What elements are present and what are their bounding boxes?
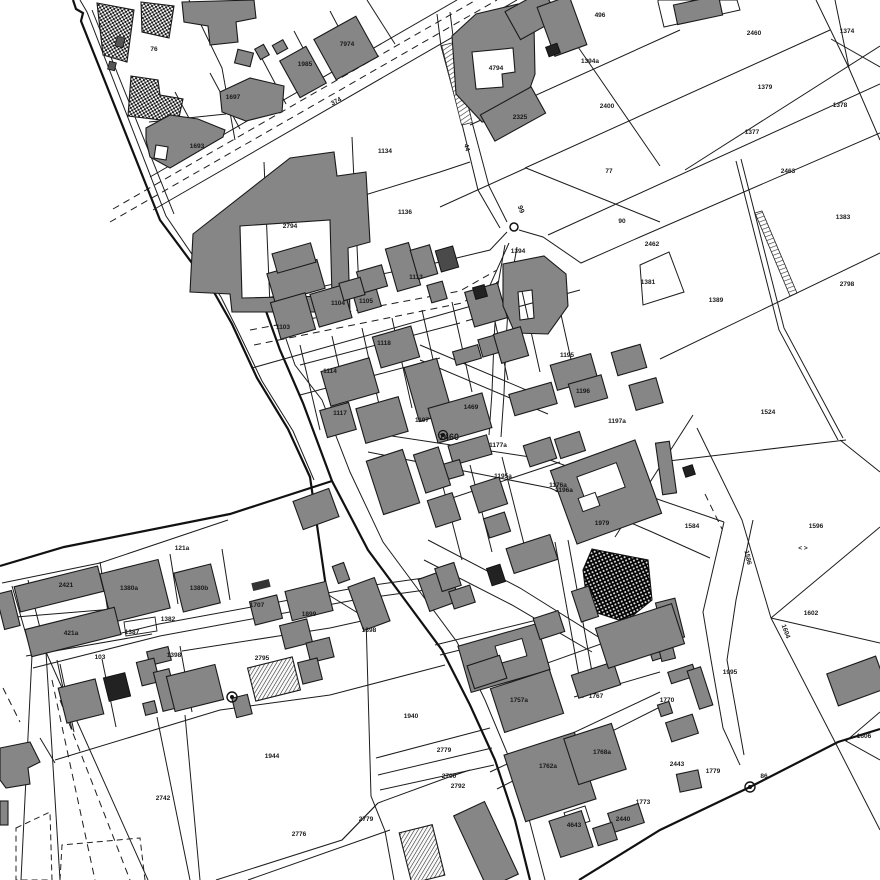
svg-text:2742: 2742	[156, 795, 171, 802]
svg-text:90: 90	[618, 218, 626, 225]
svg-text:1693: 1693	[190, 143, 205, 150]
svg-text:1377: 1377	[745, 129, 760, 136]
svg-text:86: 86	[760, 773, 768, 780]
svg-text:1374: 1374	[840, 28, 855, 35]
svg-text:1176a: 1176a	[549, 482, 567, 489]
svg-text:103: 103	[95, 654, 106, 661]
svg-text:1103: 1103	[276, 324, 290, 331]
svg-text:2795: 2795	[255, 655, 270, 662]
svg-text:1104: 1104	[331, 300, 345, 307]
svg-text:4643: 4643	[567, 822, 582, 829]
svg-text:1394: 1394	[511, 248, 526, 255]
svg-text:< >: < >	[798, 545, 808, 552]
svg-text:76: 76	[150, 46, 158, 53]
svg-text:1105: 1105	[359, 298, 373, 305]
svg-text:2443: 2443	[670, 761, 685, 768]
svg-text:1770: 1770	[660, 697, 675, 704]
svg-text:2779: 2779	[437, 747, 452, 754]
svg-text:2794: 2794	[283, 223, 298, 230]
svg-text:2440: 2440	[616, 816, 631, 823]
svg-text:1995: 1995	[723, 669, 738, 676]
svg-text:2462: 2462	[645, 241, 660, 248]
svg-text:4794: 4794	[489, 65, 504, 72]
svg-text:1118: 1118	[377, 340, 391, 347]
svg-text:1398: 1398	[167, 652, 182, 659]
svg-text:2400: 2400	[600, 103, 615, 110]
svg-text:1177a: 1177a	[489, 442, 507, 449]
svg-text:2463: 2463	[781, 168, 796, 175]
svg-text:1469: 1469	[464, 404, 479, 411]
svg-text:2421: 2421	[59, 582, 74, 589]
svg-text:1107: 1107	[415, 417, 429, 424]
svg-text:1134: 1134	[378, 148, 392, 155]
svg-text:1606: 1606	[857, 733, 872, 740]
svg-text:1196: 1196	[576, 388, 590, 395]
svg-text:1707: 1707	[250, 602, 265, 609]
svg-text:1195: 1195	[560, 352, 574, 359]
svg-text:1596: 1596	[809, 523, 824, 530]
svg-text:2325: 2325	[513, 114, 528, 121]
svg-text:1524: 1524	[761, 409, 776, 416]
svg-text:1398: 1398	[362, 627, 377, 634]
svg-text:1117: 1117	[333, 410, 347, 417]
svg-text:1768a: 1768a	[593, 749, 611, 756]
svg-text:1197a: 1197a	[608, 418, 626, 425]
svg-text:1773: 1773	[636, 799, 651, 806]
svg-text:1602: 1602	[804, 610, 819, 617]
svg-text:1697: 1697	[226, 94, 241, 101]
svg-text:1113: 1113	[409, 274, 423, 281]
svg-text:121a: 121a	[175, 545, 190, 552]
svg-text:1378: 1378	[833, 102, 848, 109]
svg-text:1195a: 1195a	[494, 473, 512, 480]
svg-text:7974: 7974	[340, 41, 355, 48]
svg-text:496: 496	[595, 12, 606, 19]
svg-text:2790: 2790	[442, 773, 457, 780]
svg-text:1382: 1382	[161, 616, 176, 623]
svg-text:1389: 1389	[709, 297, 724, 304]
svg-text:1757a: 1757a	[510, 697, 528, 704]
svg-text:1779: 1779	[706, 768, 721, 775]
svg-text:1985: 1985	[298, 61, 313, 68]
svg-text:1387: 1387	[125, 629, 140, 636]
svg-text:421a: 421a	[64, 630, 79, 637]
svg-text:1584: 1584	[685, 523, 700, 530]
svg-text:1762a: 1762a	[539, 763, 557, 770]
svg-text:1380b: 1380b	[190, 585, 208, 592]
svg-text:2776: 2776	[292, 831, 307, 838]
svg-text:2779: 2779	[359, 816, 374, 823]
svg-text:1940: 1940	[404, 713, 419, 720]
svg-text:1380a: 1380a	[120, 585, 138, 592]
svg-text:1394a: 1394a	[581, 58, 599, 65]
svg-text:1383: 1383	[836, 214, 851, 221]
svg-text:2798: 2798	[840, 281, 855, 288]
svg-text:1114: 1114	[323, 368, 337, 375]
svg-text:1136: 1136	[398, 209, 412, 216]
svg-text:1381: 1381	[641, 279, 656, 286]
svg-text:1767: 1767	[589, 693, 604, 700]
svg-text:1379: 1379	[758, 84, 773, 91]
svg-text:2792: 2792	[451, 783, 466, 790]
svg-text:2460: 2460	[747, 30, 762, 37]
svg-text:77: 77	[605, 168, 613, 175]
svg-text:1944: 1944	[265, 753, 280, 760]
svg-text:1979: 1979	[595, 520, 610, 527]
svg-text:1899: 1899	[302, 611, 317, 618]
